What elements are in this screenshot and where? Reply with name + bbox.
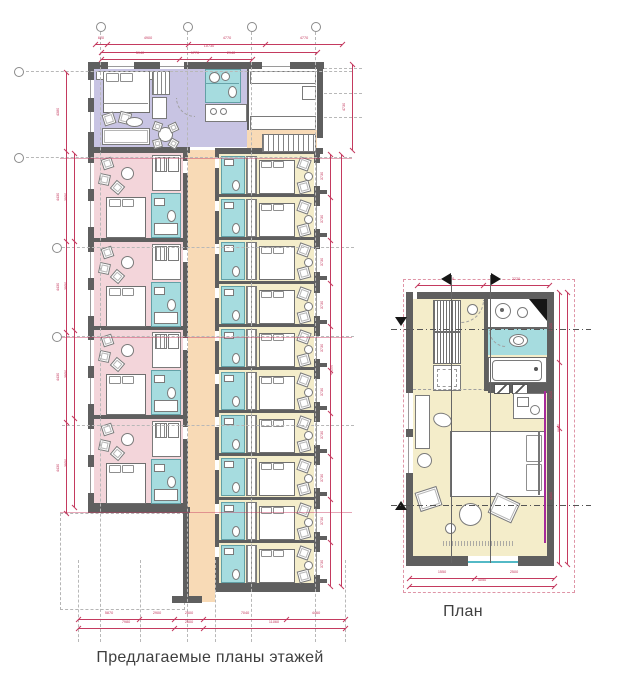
dimension-label: 2940 [227,52,235,56]
hotel-room-large [94,330,183,419]
grid-bubble [14,153,24,163]
bathtub-icon [154,223,178,235]
dimension-label: 3730 [321,431,325,439]
section-line [391,329,591,330]
pillow-icon [261,204,272,211]
pillow-icon [261,161,272,168]
balcony-divider [320,449,327,453]
grid-bubble [183,22,193,32]
chair-icon [297,482,312,497]
wall [317,62,323,138]
toilet-icon [232,180,240,191]
sink-icon [221,72,230,81]
table-icon [304,345,313,354]
grid-bubble [52,332,62,342]
table-icon [304,388,313,397]
sink-icon [224,461,234,468]
door-gap [215,374,219,384]
service-counter [250,71,316,84]
chair-icon [297,180,312,195]
dimension-label: 4430 [57,464,61,472]
pillow-icon [273,161,284,168]
window [160,62,184,69]
window [88,467,94,493]
pillow-icon [273,420,284,427]
chair-icon [297,396,312,411]
dimension-label: 1550 [437,571,445,575]
door-gap [215,201,219,211]
chair-icon [297,352,312,367]
dimension-label: 3730 [321,215,325,223]
dimension-label: 2020 [550,391,554,399]
bath-partition [205,83,239,84]
sink-icon [224,505,234,512]
grid-line [62,247,354,248]
toilet-icon [232,396,240,407]
window [88,290,94,316]
pillow-icon [109,199,121,207]
window [88,252,94,278]
pillow-icon [261,550,272,557]
dimension-label: 3730 [321,517,325,525]
bathtub-icon [154,400,178,412]
closet-icon [155,157,167,172]
sink-icon [154,287,165,295]
dimension-label: 7980 [122,621,130,625]
hob-icon [210,108,217,115]
wall [183,513,189,603]
staircase-icon [262,134,316,152]
grid-line [78,560,79,642]
dimension-label: 3730 [321,171,325,179]
hotel-room-standard [219,370,314,413]
sink-icon [224,375,234,382]
hotel-room-standard [219,197,314,240]
dimension-label: 3950 [65,370,69,378]
dimension-label: 7040 [241,612,249,616]
bed-foot-line [103,103,148,104]
door-gap [215,288,219,298]
dimension-label: 4730 [343,103,347,111]
grid-bubble [311,22,321,32]
door-gap [215,547,219,557]
chair-icon [296,545,311,560]
pillow-icon [273,550,284,557]
chair-icon [110,268,125,283]
balcony-divider [320,579,327,583]
service-counter [250,116,316,130]
architectural-drawing-canvas: Предлагаемые планы этажей 62049004770477… [0,0,626,682]
grid-line [140,560,141,642]
table-icon [304,258,313,267]
grid-bubble [52,243,62,253]
grid-bubble [247,22,257,32]
door-gap [215,158,219,168]
sofa-icon [102,128,150,145]
luggage-rack-icon [168,157,179,172]
axis-line [60,337,352,338]
toilet-icon [232,353,240,364]
wall [88,62,94,154]
dimension-label: 11060 [269,621,279,625]
window [88,163,94,189]
table-icon [121,256,134,269]
hotel-room-standard [219,456,314,499]
pillow-icon [261,463,272,470]
table-icon [304,474,313,483]
toilet-icon [167,387,176,399]
sink-icon [224,202,234,209]
hotel-room-large [94,242,183,331]
main-plan-caption: Предлагаемые планы этажей [85,649,335,667]
dimension-label: 3730 [321,560,325,568]
toilet-icon [232,526,240,537]
table-icon [304,561,313,570]
corridor [188,150,215,602]
axis-line [60,158,352,159]
hotel-room-standard [219,543,314,586]
hotel-room-standard [219,154,314,197]
dresser-icon [152,97,167,119]
dimension-label: 5940 [136,52,144,56]
bathtub-icon [154,489,178,501]
detail-plan-caption: План [413,603,513,621]
toilet-icon [232,310,240,321]
dimension-label: 10730 [204,45,214,49]
dimension-label: 5870 [105,612,113,616]
pillow-icon [122,288,134,296]
dimension-label: 3730 [321,474,325,482]
window [88,201,94,227]
dimension-label: 3730 [321,344,325,352]
toilet-icon [232,569,240,580]
fridge-icon [302,86,316,100]
pillow-icon [122,199,134,207]
grid-line [324,68,362,69]
table-icon [304,172,313,181]
section-line [451,275,452,563]
chair-icon [297,223,312,238]
pillow-icon [261,420,272,427]
toilet-icon [167,476,176,488]
detail-room-plan: План 19802220222020204380862015502500405… [403,273,593,633]
grid-line [62,425,354,426]
chair-icon [296,502,311,517]
dimension-label: 4770 [300,37,308,41]
chair-icon [296,286,311,301]
table-icon [304,302,313,311]
pillow-icon [120,73,133,82]
dimension-label: 4460 [311,612,319,616]
dimension-label: 8620 [558,424,562,432]
bathtub-icon [154,312,178,324]
grid-line [26,71,352,72]
dimension-label: 3730 [321,387,325,395]
chair-icon [297,439,312,454]
balcony-divider [320,406,327,410]
dimension-label: 2500 [510,571,518,575]
grid-line [324,93,362,94]
dimension-label: 4430 [57,192,61,200]
pillow-icon [261,377,272,384]
sink-icon [224,159,234,166]
chair-icon [296,372,311,387]
dimension-label: 4430 [57,283,61,291]
window [88,378,94,404]
balcony-divider [320,233,327,237]
grid-line [215,560,216,642]
pillow-icon [273,291,284,298]
pillow-icon [273,377,284,384]
closet-icon [152,71,170,95]
hotel-room-standard [219,284,314,327]
sink-icon [154,464,165,472]
table-icon [304,215,313,224]
pillow-icon [106,73,119,82]
window [262,62,290,69]
dimension-label: 2220 [512,278,520,282]
dimension-label: 3950 [65,459,69,467]
table-icon [121,344,134,357]
table-icon [304,431,313,440]
sink-icon [154,198,165,206]
balcony-divider [320,276,327,280]
sink-icon [209,72,220,83]
pillow-icon [109,465,121,473]
chair-icon [296,459,311,474]
pillow-icon [122,465,134,473]
pillow-icon [273,247,284,254]
sink-icon [224,548,234,555]
hotel-room-standard [219,327,314,370]
pillow-icon [109,376,121,384]
chair-icon [110,180,125,195]
dimension-label: 2600 [185,621,193,625]
grid-bubble [14,67,24,77]
dimension-label: 4050 [477,579,485,583]
dimension-label: 2900 [153,612,161,616]
hotel-room-large [94,419,183,508]
toilet-icon [228,86,237,98]
pillow-icon [261,291,272,298]
grid-line [324,117,362,118]
window [88,429,94,455]
chair-icon [296,199,311,214]
dimension-label: 620 [98,37,104,41]
dimension-label: 43200 [330,365,334,375]
chair-icon [297,309,312,324]
pillow-icon [122,376,134,384]
window [88,112,94,132]
window [108,62,134,69]
grid-line [345,560,346,642]
dimension-label: 4770 [223,37,231,41]
toilet-icon [167,299,176,311]
hotel-room-standard [219,413,314,456]
pillow-icon [261,247,272,254]
door-gap [215,460,219,470]
door-gap [215,244,219,254]
dimension-label: 4900 [144,37,152,41]
balcony-divider [320,363,327,367]
hob-icon [220,108,227,115]
hotel-room-large [94,153,183,242]
section-line [490,275,491,563]
dimension-label: 3730 [321,301,325,309]
axis-line [60,512,352,513]
hotel-room-standard [219,500,314,543]
chair-icon [297,266,312,281]
sink-icon [224,289,234,296]
pillow-icon [273,204,284,211]
dimension-label: 4430 [57,373,61,381]
balcony-divider [320,536,327,540]
chair-icon [297,525,312,540]
balcony-divider [320,190,327,194]
pillow-icon [273,463,284,470]
dimension-label: 3950 [65,282,69,290]
table-icon [121,167,134,180]
dimension-label: 3950 [65,193,69,201]
window [88,80,94,98]
dimension-label: 2220 [550,323,554,331]
dimension-label: 4380 [57,108,61,116]
grid-bubble [96,22,106,32]
coffee-table-icon [126,117,143,127]
table-icon [304,518,313,527]
dimension-label: 3730 [321,258,325,266]
chair-icon [110,445,125,460]
chair-icon [110,357,125,372]
chair-icon [296,243,311,258]
pillow-icon [109,288,121,296]
table-icon [121,433,134,446]
dimension-label: 4380 [550,492,554,500]
sink-icon [154,375,165,383]
balcony-divider [320,320,327,324]
dimension-label: 2600 [185,612,193,616]
wall [215,586,320,592]
window [88,340,94,366]
dimension-label: 1770 [190,52,198,56]
section-line [391,505,591,506]
chair-icon [296,415,311,430]
chair-icon [297,568,312,583]
balcony-divider [320,492,327,496]
toilet-icon [167,210,176,222]
